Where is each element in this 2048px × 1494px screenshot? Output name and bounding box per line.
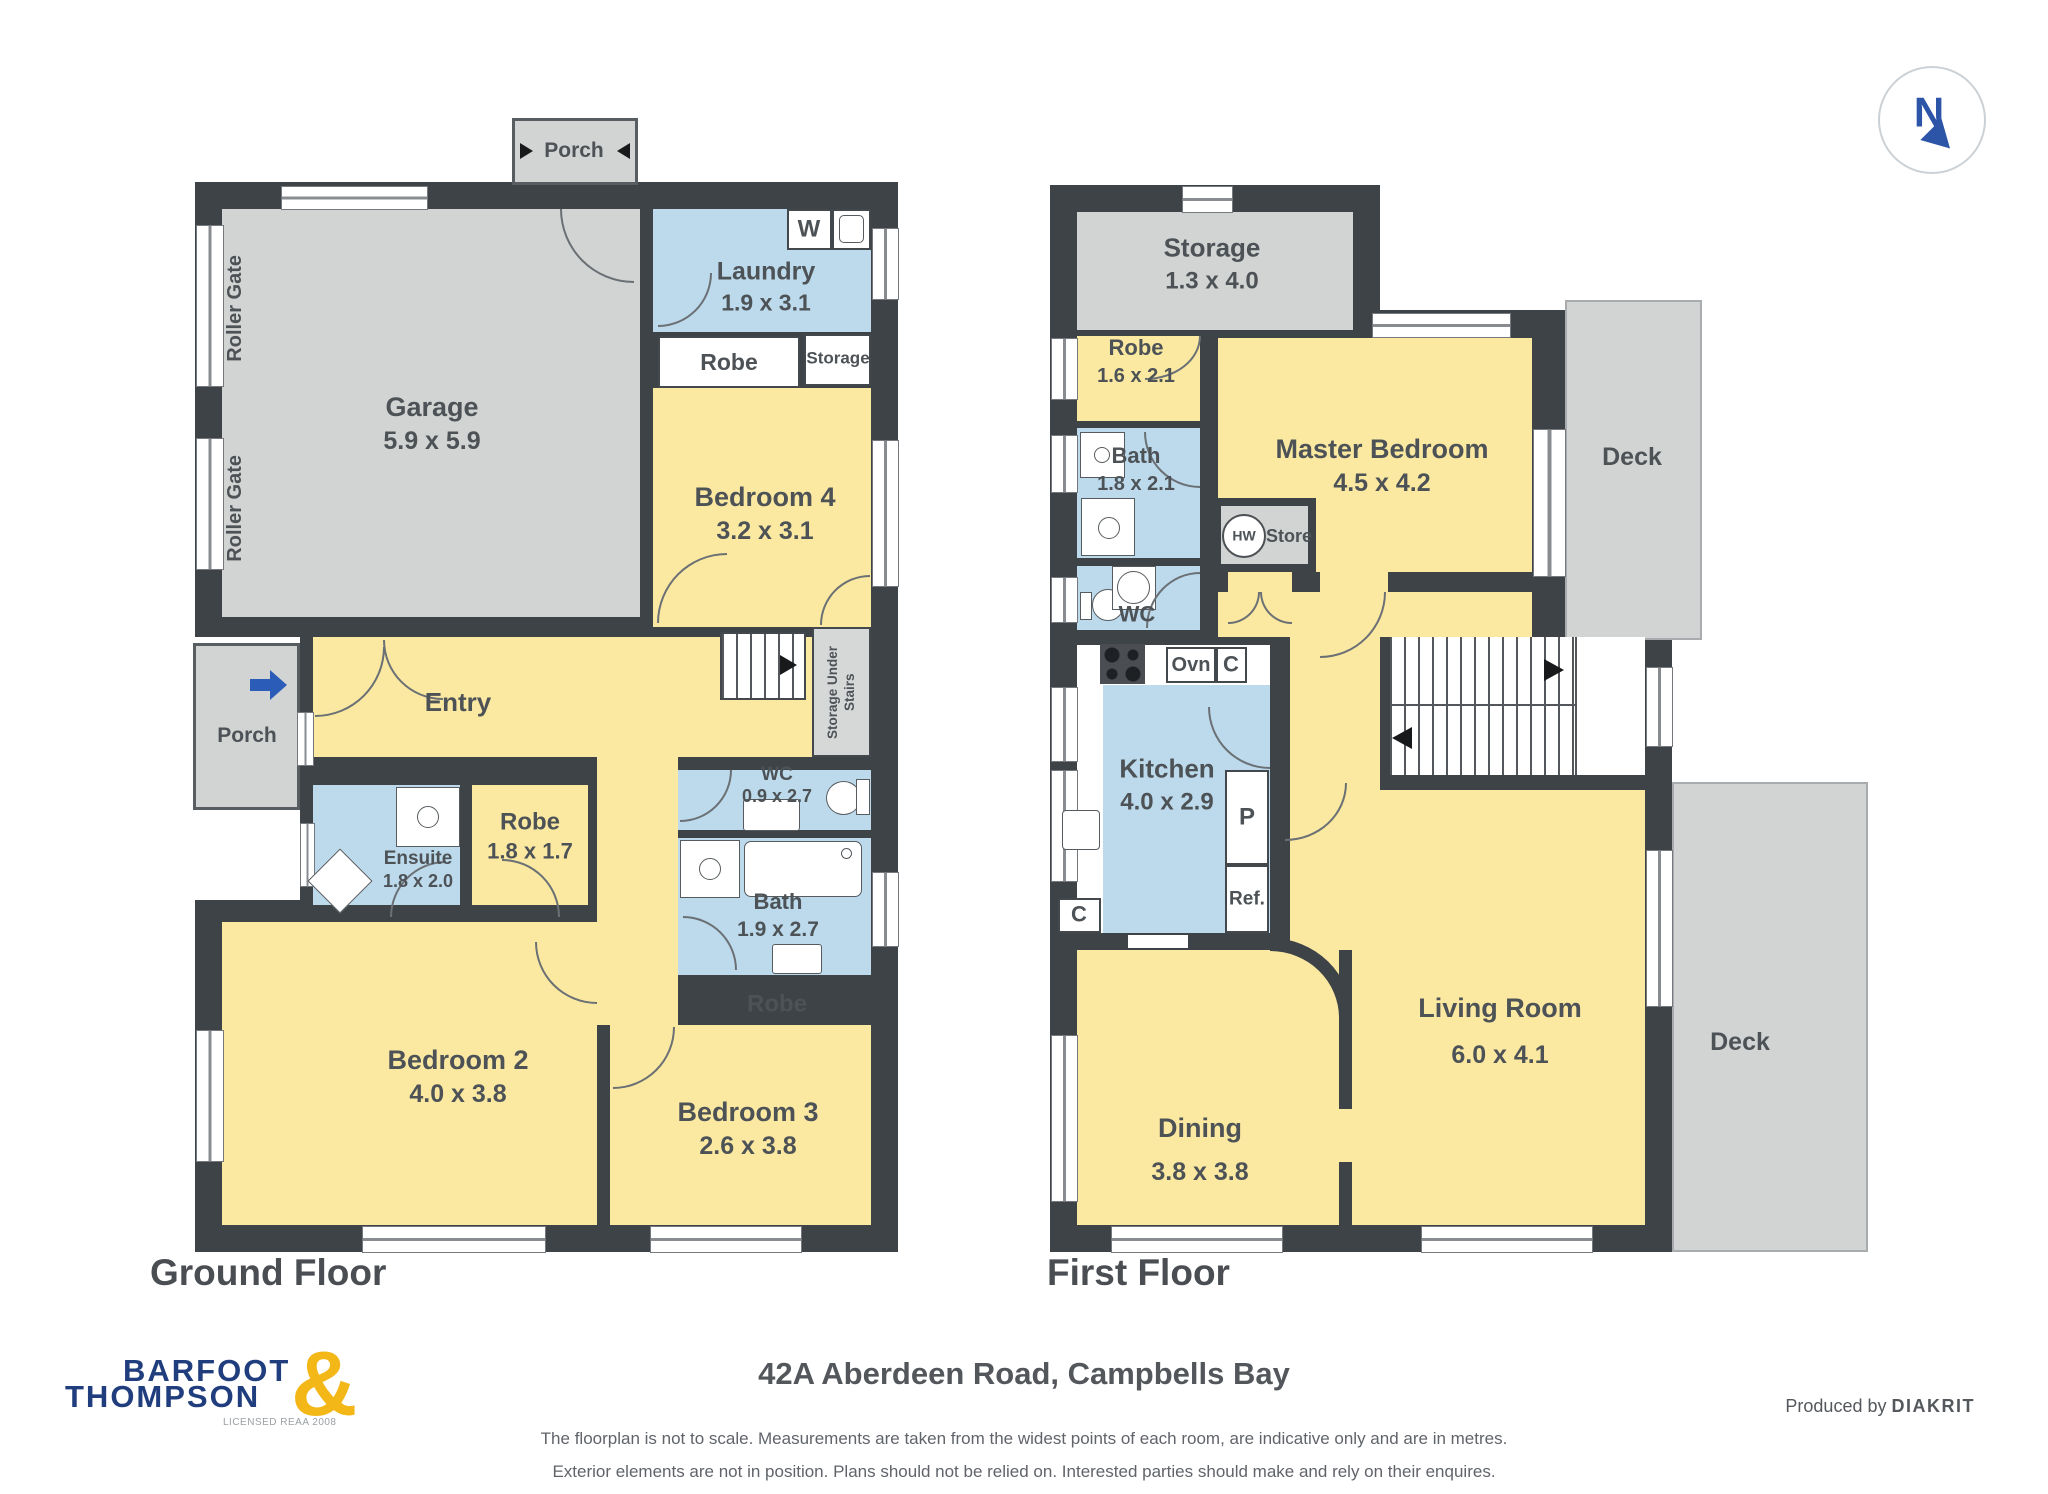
roller-gate-label-2: Roller Gate [218, 433, 252, 583]
wall [1339, 1012, 1352, 1109]
window [1646, 667, 1673, 747]
door-gap [1128, 935, 1188, 948]
wc-ff-label: WC [1119, 602, 1156, 629]
brand-license: LICENSED REAA 2008 [223, 1417, 337, 1428]
toilet-cistern-icon [1080, 592, 1092, 620]
porch-top-label: Porch [544, 138, 604, 164]
window [872, 872, 899, 947]
window [362, 1226, 546, 1253]
window [1646, 850, 1673, 1007]
ground-floor-title: Ground Floor [150, 1252, 386, 1294]
room-living [1290, 790, 1645, 950]
kitchen-label: Kitchen4.0 x 2.9 [1119, 753, 1214, 816]
door-gap [1339, 1109, 1352, 1162]
bedroom3-label: Bedroom 32.6 x 3.8 [677, 1096, 818, 1162]
cabinet-label: C [1071, 902, 1087, 929]
robe-ff-label: Robe1.6 x 2.1 [1097, 335, 1175, 389]
window [281, 186, 428, 210]
first-floor-title: First Floor [1047, 1252, 1230, 1294]
bedroom4-label: Bedroom 43.2 x 3.1 [694, 481, 835, 547]
storage-under-stairs-label: Storage Under Stairs [812, 629, 871, 755]
window [1051, 1035, 1078, 1202]
porch-arrow-left-icon [617, 143, 630, 159]
storage-ff-label: Storage1.3 x 4.0 [1164, 232, 1261, 295]
stairs-up-arrow-icon [1544, 659, 1564, 681]
laundry-label: Laundry1.9 x 3.1 [717, 257, 816, 318]
vanity-icon [772, 944, 822, 974]
garage-label: Garage5.9 x 5.9 [383, 391, 480, 457]
stair-treads [1390, 637, 1575, 775]
pantry-label: P [1239, 802, 1255, 831]
produced-by: Produced by DIAKRIT [1690, 1396, 1975, 1417]
window [1533, 429, 1566, 577]
stairs-up-arrow-icon [780, 655, 797, 675]
disclaimer-line2: Exterior elements are not in position. P… [0, 1462, 2048, 1482]
oven-label: Ovn [1172, 653, 1211, 677]
window [1051, 577, 1078, 623]
deck-lower-label: Deck [1710, 1027, 1770, 1058]
stairs-down-arrow-icon [1392, 727, 1412, 749]
door-gap [1320, 572, 1388, 592]
window [1111, 1226, 1283, 1253]
hw-label: HW [1232, 527, 1255, 544]
sink-basin-icon [839, 215, 864, 243]
floorplan-page: N [0, 0, 2048, 1494]
window [650, 1226, 802, 1253]
laundry-tub [832, 209, 871, 250]
master-bedroom-label: Master Bedroom4.5 x 4.2 [1275, 433, 1488, 499]
ensuite-label: Ensuite1.8 x 2.0 [383, 848, 453, 894]
wall [1339, 1162, 1352, 1225]
shower-icon [396, 787, 460, 847]
window [1182, 186, 1233, 213]
dining-label: Dining3.8 x 3.8 [1151, 1107, 1248, 1193]
entry-arrow-head-icon [270, 670, 287, 700]
stairs-ff [1390, 637, 1645, 775]
window [1372, 313, 1511, 338]
producer-name: DIAKRIT [1892, 1396, 1976, 1416]
bath-ff-label: Bath1.8 x 2.1 [1097, 443, 1175, 497]
bedroom2-label: Bedroom 24.0 x 3.8 [387, 1044, 528, 1110]
bath-gf-label: Bath1.9 x 2.7 [737, 889, 819, 943]
window [872, 228, 899, 300]
wc-gf-label: WC0.9 x 2.7 [742, 764, 812, 808]
window [1051, 687, 1078, 762]
robe-top-label: Robe [700, 348, 758, 376]
kitchen-counter [1077, 685, 1103, 933]
roller-gate-label-1: Roller Gate [218, 223, 252, 393]
hall-stairs [1290, 637, 1380, 790]
window [1051, 435, 1078, 493]
porch-arrow-right-icon [520, 143, 533, 159]
storage-top-label: Storage [806, 349, 869, 370]
porch-left-label: Porch [217, 723, 277, 749]
shower-icon [680, 840, 740, 898]
window [297, 712, 314, 766]
robe3-label: Robe [747, 989, 807, 1018]
disclaimer-line1: The floorplan is not to scale. Measureme… [0, 1429, 2048, 1449]
living-room-label: Living Room6.0 x 4.1 [1418, 986, 1582, 1078]
produced-by-text: Produced by [1785, 1396, 1886, 1416]
stair-divider [1390, 704, 1575, 706]
robe2-label: Robe1.8 x 1.7 [487, 808, 573, 867]
entry-arrow-icon [250, 679, 270, 691]
window [1051, 338, 1078, 400]
window [196, 1030, 224, 1162]
washer-label: W [798, 214, 821, 243]
entry-label: Entry [425, 687, 491, 719]
kitchen-sink-icon [1062, 810, 1100, 850]
shower-icon [1081, 498, 1135, 556]
deck-lower [1672, 782, 1868, 1252]
toilet-cistern-icon [856, 779, 870, 815]
door-gap [1228, 572, 1292, 592]
hallway [597, 757, 678, 1025]
deck-upper-label: Deck [1602, 442, 1662, 473]
stair-edge [1575, 637, 1577, 775]
window [1421, 1226, 1593, 1253]
cooktop-icon [1100, 644, 1145, 684]
fridge-label: Ref. [1229, 887, 1265, 910]
window [872, 440, 899, 587]
address-title: 42A Aberdeen Road, Campbells Bay [0, 1356, 2048, 1392]
store-label: Store [1266, 526, 1312, 548]
cabinet-label: C [1223, 652, 1239, 679]
